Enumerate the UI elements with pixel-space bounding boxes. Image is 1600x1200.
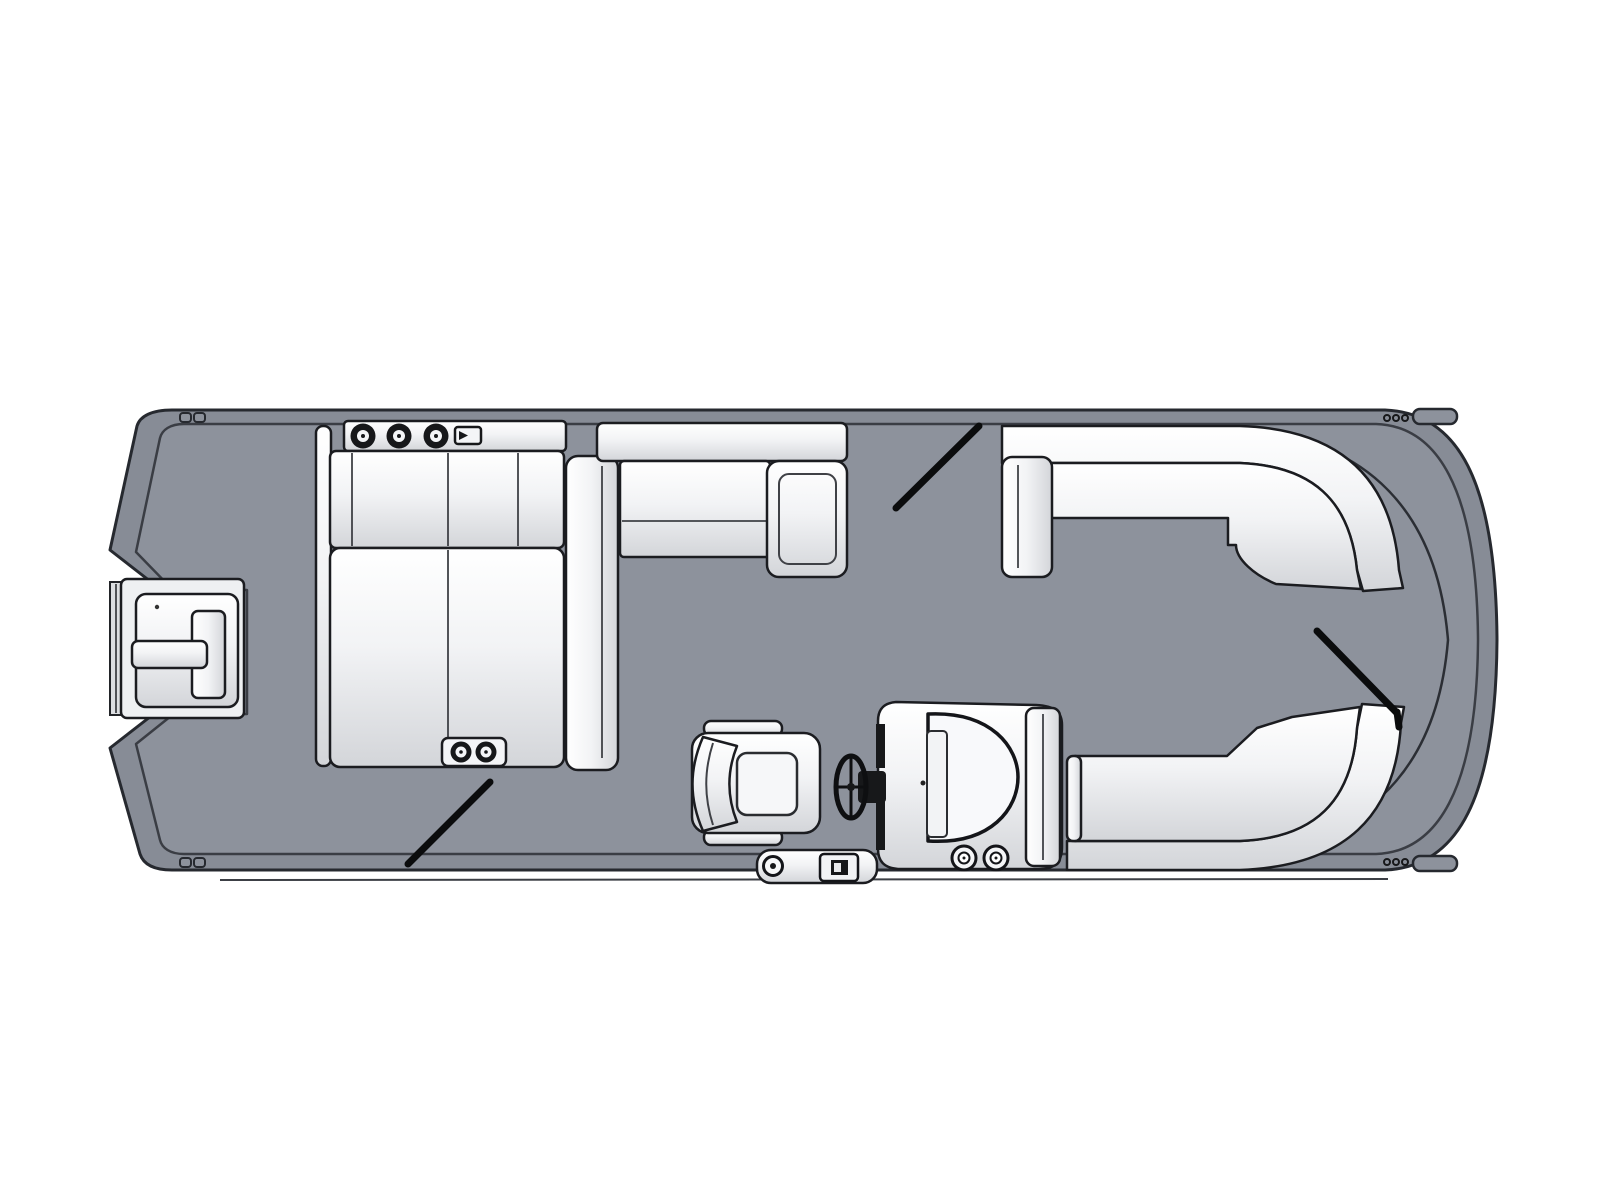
cup-holder bbox=[476, 742, 497, 763]
cup-holder bbox=[451, 742, 472, 763]
chaise-seat-column bbox=[566, 456, 618, 770]
lounge-sun-pad bbox=[330, 548, 564, 767]
console-instrument-panel bbox=[927, 731, 947, 837]
speaker-knob bbox=[351, 424, 376, 449]
motor-bolt bbox=[155, 605, 159, 609]
chair-seat-cushion bbox=[737, 753, 797, 815]
outboard-motor bbox=[110, 579, 244, 718]
motor-crossbar bbox=[132, 641, 207, 668]
cup-holder bbox=[984, 846, 1008, 870]
bow-lounge-end-lip bbox=[1067, 756, 1081, 841]
pontoon-floorplan-page: Pontoon boat deck floor plan (top view) bbox=[0, 0, 1600, 1200]
bench-seat bbox=[620, 461, 770, 557]
bench-backrest bbox=[597, 423, 847, 461]
lounge-backrest bbox=[330, 451, 564, 548]
latch-fitting bbox=[455, 427, 481, 444]
chair-backrest bbox=[693, 737, 738, 831]
console-left-rail bbox=[876, 724, 885, 768]
speaker-knob bbox=[424, 424, 449, 449]
captains-chair bbox=[692, 721, 820, 845]
cup-holder bbox=[952, 846, 976, 870]
speaker-knob bbox=[387, 424, 412, 449]
pontoon-floorplan-diagram: Pontoon boat deck floor plan (top view) bbox=[0, 0, 1600, 1200]
gate-hinge bbox=[764, 857, 783, 876]
console-dot bbox=[921, 781, 926, 786]
gate-latch bbox=[820, 854, 858, 881]
bow-lounge-armrest bbox=[1002, 457, 1052, 577]
boarding-gate-door bbox=[757, 850, 877, 883]
port-midship-bench bbox=[597, 423, 847, 577]
helm-console bbox=[876, 702, 1062, 870]
port-stern-lounge bbox=[316, 421, 618, 770]
